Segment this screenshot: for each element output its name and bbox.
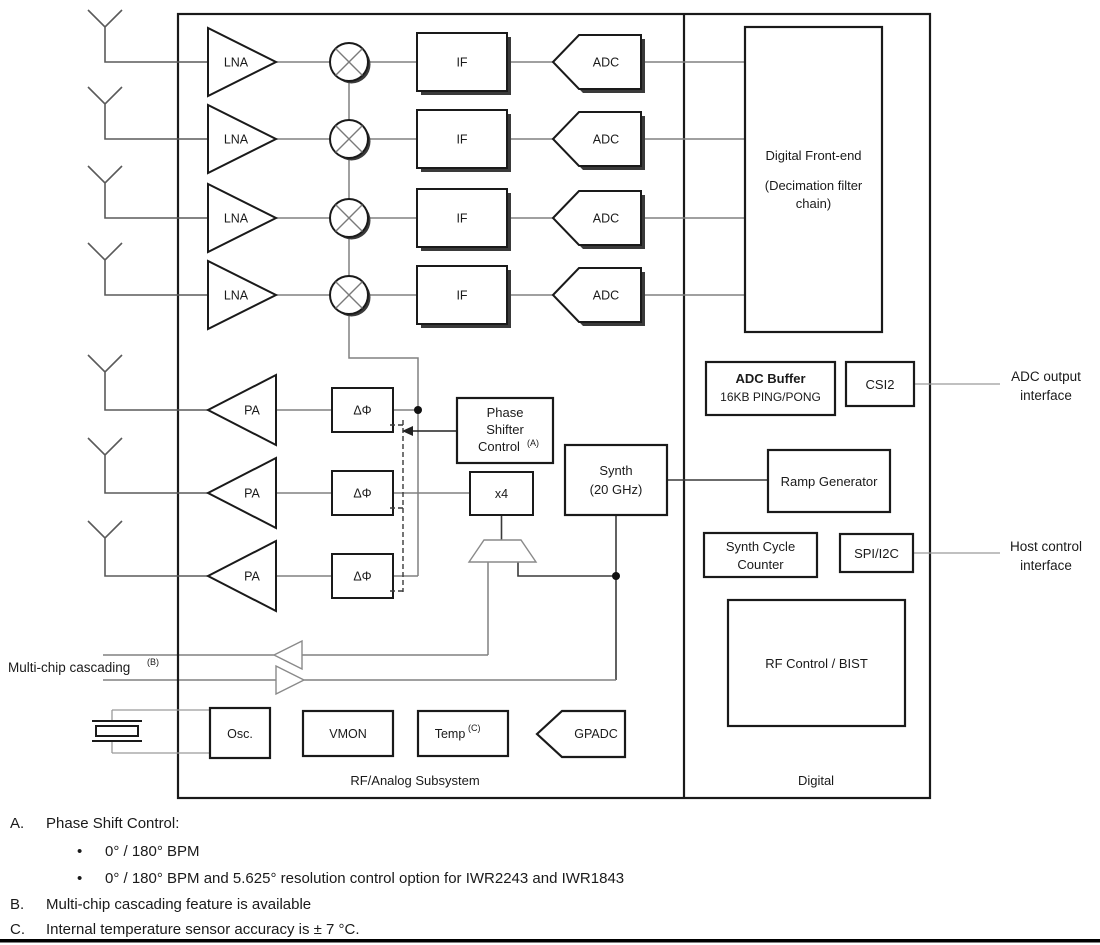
pa-amp (208, 375, 276, 445)
synth-network (469, 515, 620, 680)
tx-chain-2: PA ΔΦ (88, 438, 393, 528)
note-c-text: Internal temperature sensor accuracy is … (46, 921, 360, 938)
rx-antenna-icon (88, 166, 208, 218)
bullet-icon: • (77, 843, 82, 860)
rx-chain-4: LNA IF ADC (88, 243, 745, 329)
spi-i2c-label: SPI/I2C (854, 546, 899, 561)
dfe-line3: chain) (796, 196, 831, 211)
gpadc-label: GPADC (574, 727, 618, 741)
lo-junction-dot (414, 406, 422, 414)
synth-group: Synth (20 GHz) (565, 445, 768, 515)
dfe-line1: Digital Front-end (765, 148, 861, 163)
pa-amp (208, 541, 276, 611)
rx-chain-2: LNA IF ADC (88, 87, 745, 173)
scc-line2: Counter (737, 557, 784, 572)
pa-label: PA (244, 570, 260, 584)
spi-i2c-group: SPI/I2C Host control interface (840, 534, 1082, 573)
tx-chain-1: PA ΔΦ (88, 355, 393, 445)
adc-buffer-block (706, 362, 835, 415)
note-b-text: Multi-chip cascading feature is availabl… (46, 896, 311, 913)
ramp-generator-group: Ramp Generator (768, 450, 890, 512)
tx-antenna-icon (88, 355, 208, 410)
rx-chain-3: LNA IF ADC (88, 166, 745, 252)
rx-chain-1: LNA IF ADC (88, 10, 745, 96)
radar-soc-block-diagram: Multi-chip cascading (B) LNA IF ADC LNA … (0, 0, 1100, 945)
ramp-generator-label: Ramp Generator (781, 474, 878, 489)
if-label: IF (456, 289, 467, 303)
lna-label: LNA (224, 289, 249, 303)
note-b-label: B. (10, 896, 24, 913)
adc-label: ADC (593, 56, 619, 70)
vmon-label: VMON (329, 727, 367, 741)
lna-label: LNA (224, 133, 249, 147)
adc-label: ADC (593, 289, 619, 303)
adc-output-interface-line1: ADC output (1011, 369, 1081, 384)
monitor-blocks: VMON Temp (C) GPADC (303, 711, 625, 757)
temp-label: Temp (435, 727, 466, 741)
x4-label: x4 (495, 487, 508, 501)
bottom-rule (0, 939, 1100, 943)
phase-shifter-label: ΔΦ (353, 404, 371, 418)
note-a-item-2: 0° / 180° BPM and 5.625° resolution cont… (105, 870, 624, 887)
adc-buffer-group: ADC Buffer 16KB PING/PONG (706, 362, 835, 415)
lo-splitter-icon (469, 540, 536, 562)
rf-control-bist-label: RF Control / BIST (765, 656, 868, 671)
adc-buffer-title: ADC Buffer (735, 371, 805, 386)
cascade-in-buffer-icon (276, 666, 304, 694)
rx-antenna-icon (88, 87, 208, 139)
phase-shifter-label: ΔΦ (353, 570, 371, 584)
psc-superscript: (A) (527, 438, 539, 448)
phase-shifter-label: ΔΦ (353, 487, 371, 501)
lna-label: LNA (224, 212, 249, 226)
synth-cycle-counter-group: Synth Cycle Counter (704, 533, 817, 577)
rf-analog-section-label: RF/Analog Subsystem (350, 773, 479, 788)
pa-label: PA (244, 404, 260, 418)
rx-antenna-icon (88, 243, 208, 295)
multichip-superscript: (B) (147, 657, 159, 667)
digital-front-end: Digital Front-end (Decimation filter cha… (745, 27, 882, 332)
digital-section-label: Digital (798, 773, 834, 788)
adc-buffer-subtitle: 16KB PING/PONG (720, 390, 821, 404)
tx-chain-3: PA ΔΦ (88, 521, 393, 611)
tx-antenna-icon (88, 521, 208, 576)
csi2-label: CSI2 (866, 377, 895, 392)
synth-junction-dot (612, 572, 620, 580)
synth-line2: (20 GHz) (590, 482, 643, 497)
bullet-icon: • (77, 870, 82, 887)
splitter-to-synth-node-wire (518, 562, 616, 576)
adc-output-interface-line2: interface (1020, 388, 1072, 403)
if-label: IF (456, 212, 467, 226)
note-a-text: Phase Shift Control: (46, 815, 179, 832)
adc-label: ADC (593, 133, 619, 147)
x4-multiplier: x4 (470, 472, 533, 515)
temp-superscript: (C) (468, 723, 481, 733)
rx-antenna-icon (88, 10, 208, 62)
dfe-line2: (Decimation filter (765, 178, 863, 193)
cascade-out-buffer-icon (274, 641, 302, 669)
csi2-group: CSI2 ADC output interface (846, 362, 1081, 406)
pa-amp (208, 458, 276, 528)
note-c-label: C. (10, 921, 25, 938)
rf-control-bist-group: RF Control / BIST (728, 600, 905, 726)
if-label: IF (456, 133, 467, 147)
synth-line1: Synth (599, 463, 632, 478)
tx-antenna-icon (88, 438, 208, 493)
psc-line1: Phase (487, 405, 524, 420)
multichip-label: Multi-chip cascading (8, 660, 130, 675)
footnotes: A. Phase Shift Control: • 0° / 180° BPM … (0, 815, 1100, 943)
crystal-osc-group: Osc. (92, 708, 270, 758)
psc-line3: Control (478, 439, 520, 454)
host-control-interface-line2: interface (1020, 558, 1072, 573)
phase-control-arrowhead-icon (402, 426, 413, 436)
pa-label: PA (244, 487, 260, 501)
note-a-label: A. (10, 815, 24, 832)
adc-label: ADC (593, 212, 619, 226)
psc-line2: Shifter (486, 422, 524, 437)
if-label: IF (456, 56, 467, 70)
lna-label: LNA (224, 56, 249, 70)
host-control-interface-line1: Host control (1010, 539, 1082, 554)
synth-block (565, 445, 667, 515)
diagram-canvas: Multi-chip cascading (B) LNA IF ADC LNA … (0, 0, 1100, 945)
scc-line1: Synth Cycle (726, 539, 795, 554)
osc-label: Osc. (227, 727, 253, 741)
multichip-cascading: Multi-chip cascading (B) (8, 641, 616, 694)
crystal-icon (96, 726, 138, 736)
note-a-item-1: 0° / 180° BPM (105, 843, 200, 860)
